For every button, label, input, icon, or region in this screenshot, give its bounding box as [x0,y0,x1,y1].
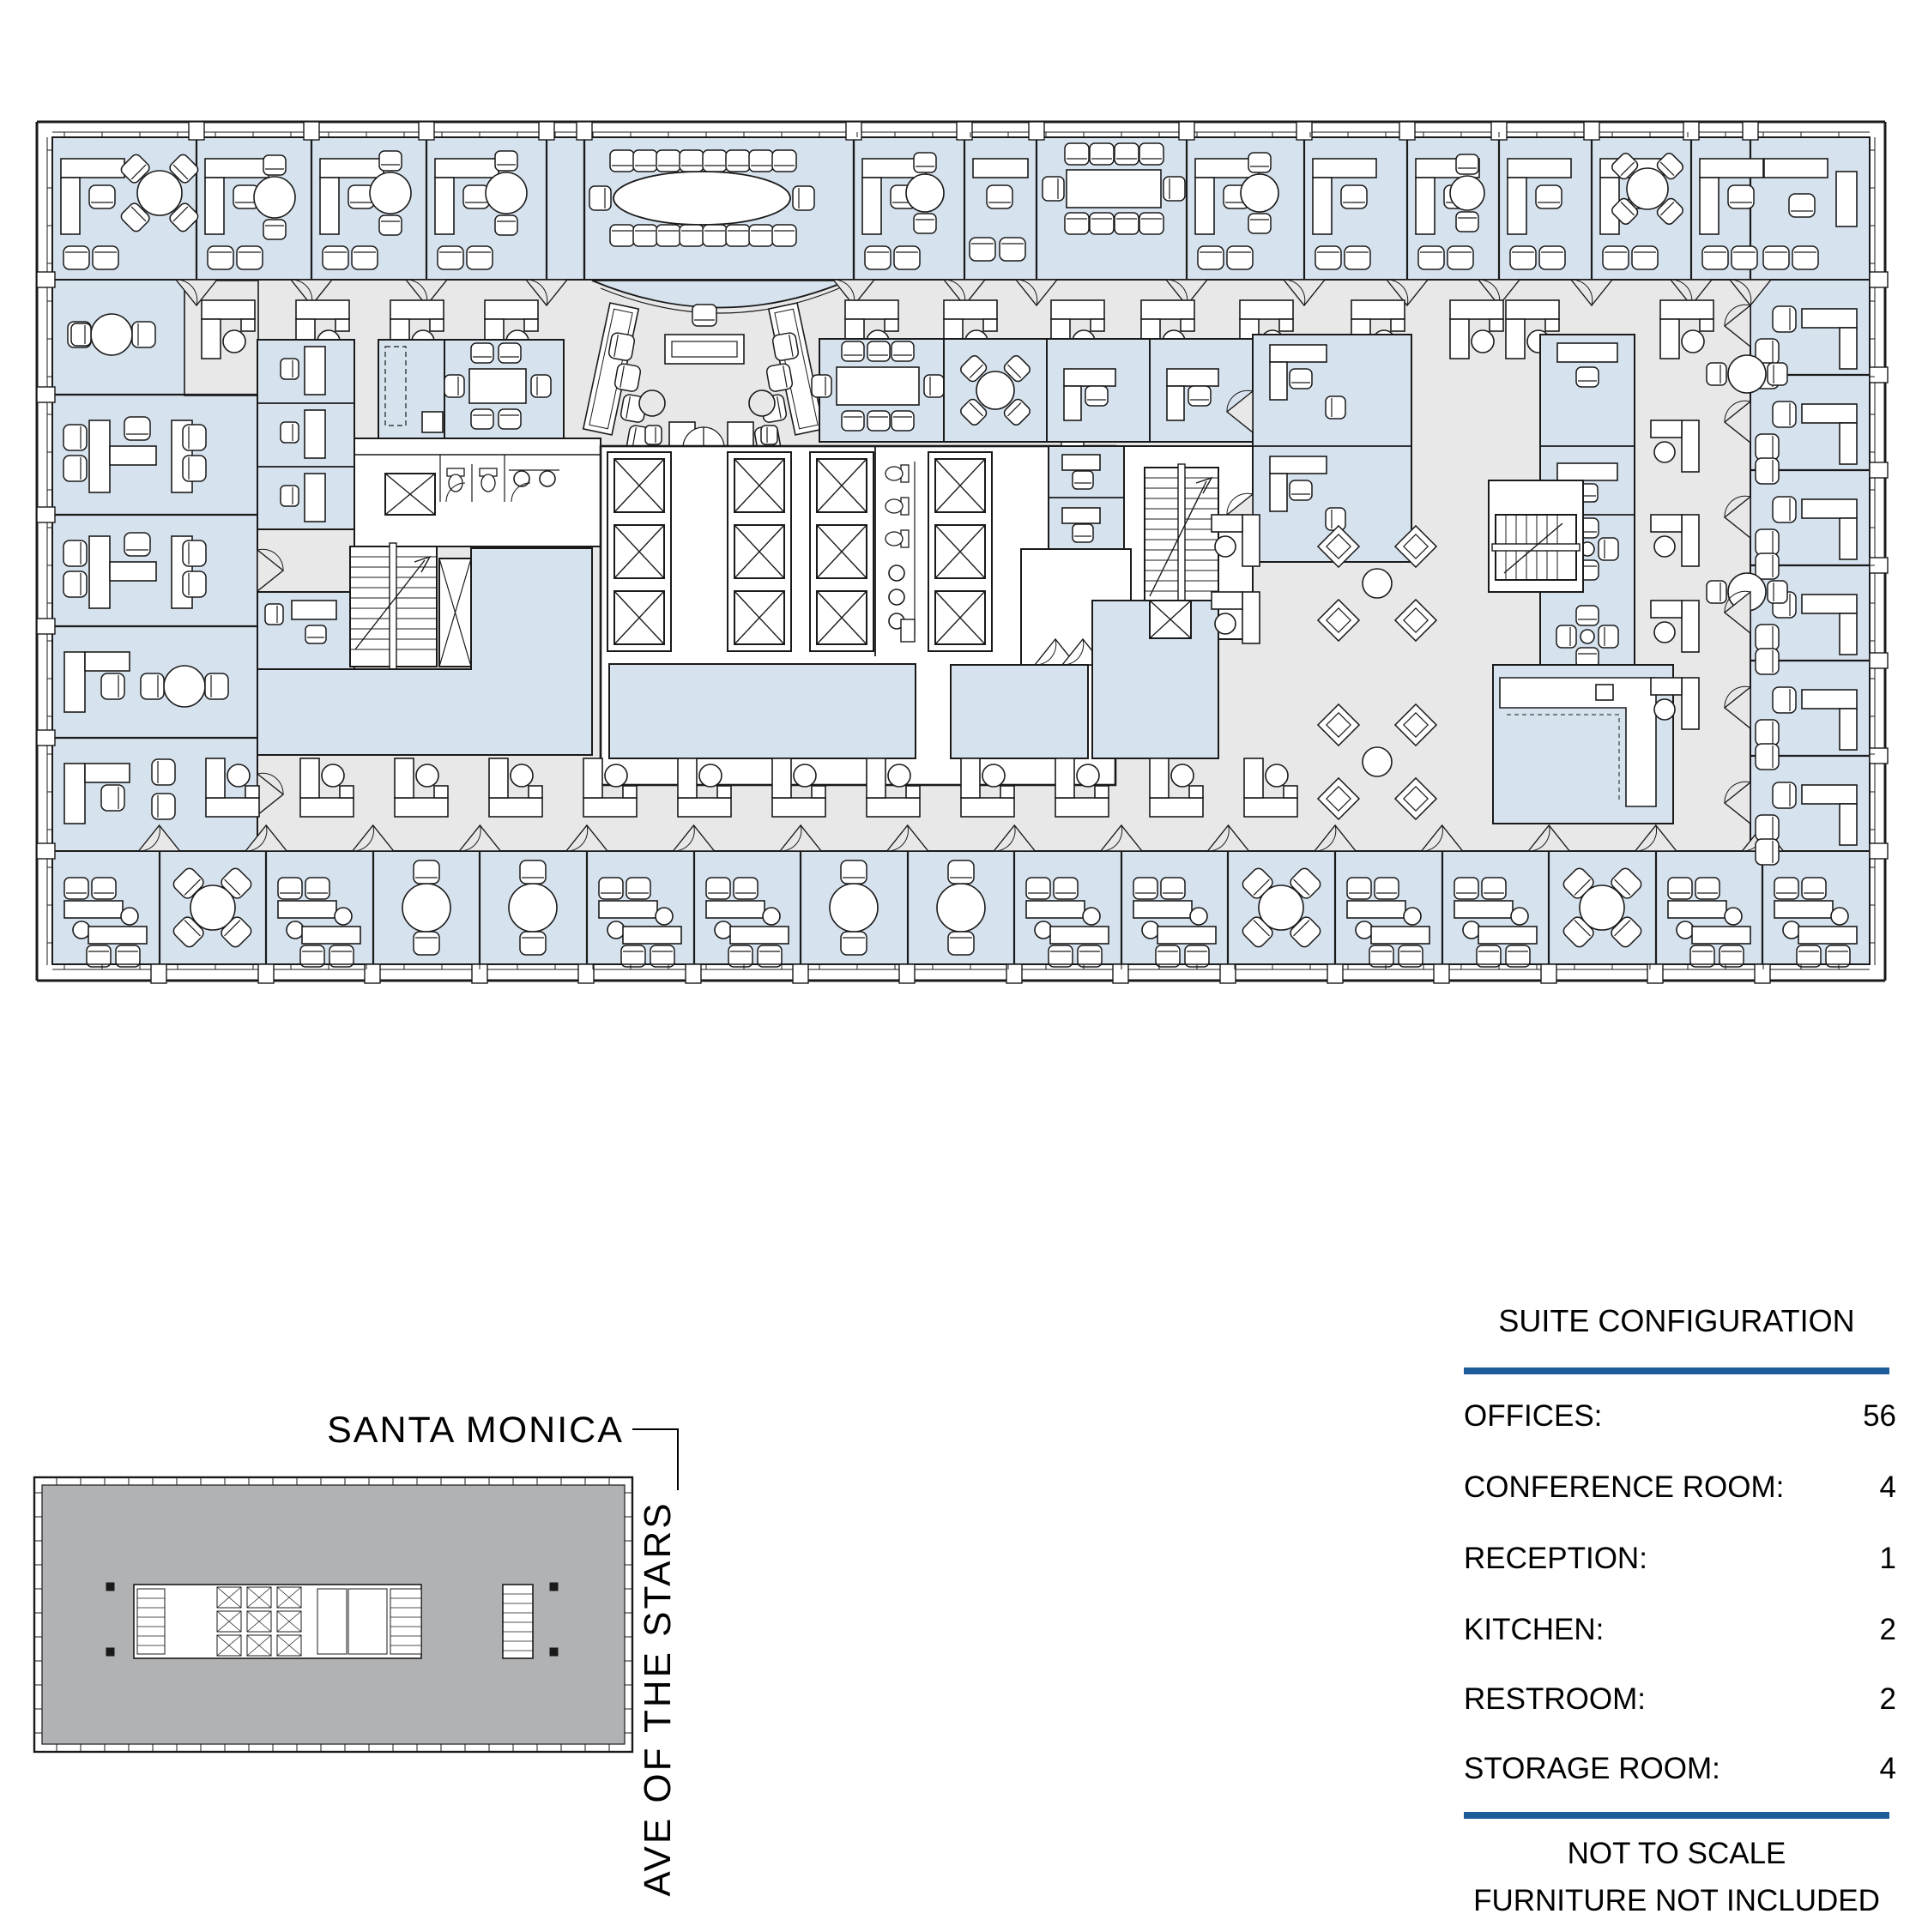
svg-text:2: 2 [1880,1613,1896,1646]
svg-text:SANTA MONICA: SANTA MONICA [327,1410,624,1451]
svg-text:NOT TO SCALE: NOT TO SCALE [1568,1837,1786,1870]
svg-text:1: 1 [1880,1542,1896,1575]
svg-text:56: 56 [1863,1399,1896,1433]
svg-text:RECEPTION:: RECEPTION: [1464,1542,1647,1575]
svg-text:AVE OF THE STARS: AVE OF THE STARS [637,1500,679,1896]
svg-text:OFFICES:: OFFICES: [1464,1399,1602,1433]
svg-text:SUITE CONFIGURATION: SUITE CONFIGURATION [1498,1303,1854,1338]
svg-text:KITCHEN:: KITCHEN: [1464,1613,1604,1646]
svg-text:RESTROOM:: RESTROOM: [1464,1682,1646,1716]
svg-text:2: 2 [1880,1682,1896,1716]
svg-text:FURNITURE NOT INCLUDED: FURNITURE NOT INCLUDED [1473,1884,1880,1917]
svg-text:STORAGE ROOM:: STORAGE ROOM: [1464,1752,1720,1785]
svg-text:CONFERENCE ROOM:: CONFERENCE ROOM: [1464,1470,1784,1504]
svg-text:4: 4 [1880,1752,1896,1785]
svg-text:4: 4 [1880,1470,1896,1504]
